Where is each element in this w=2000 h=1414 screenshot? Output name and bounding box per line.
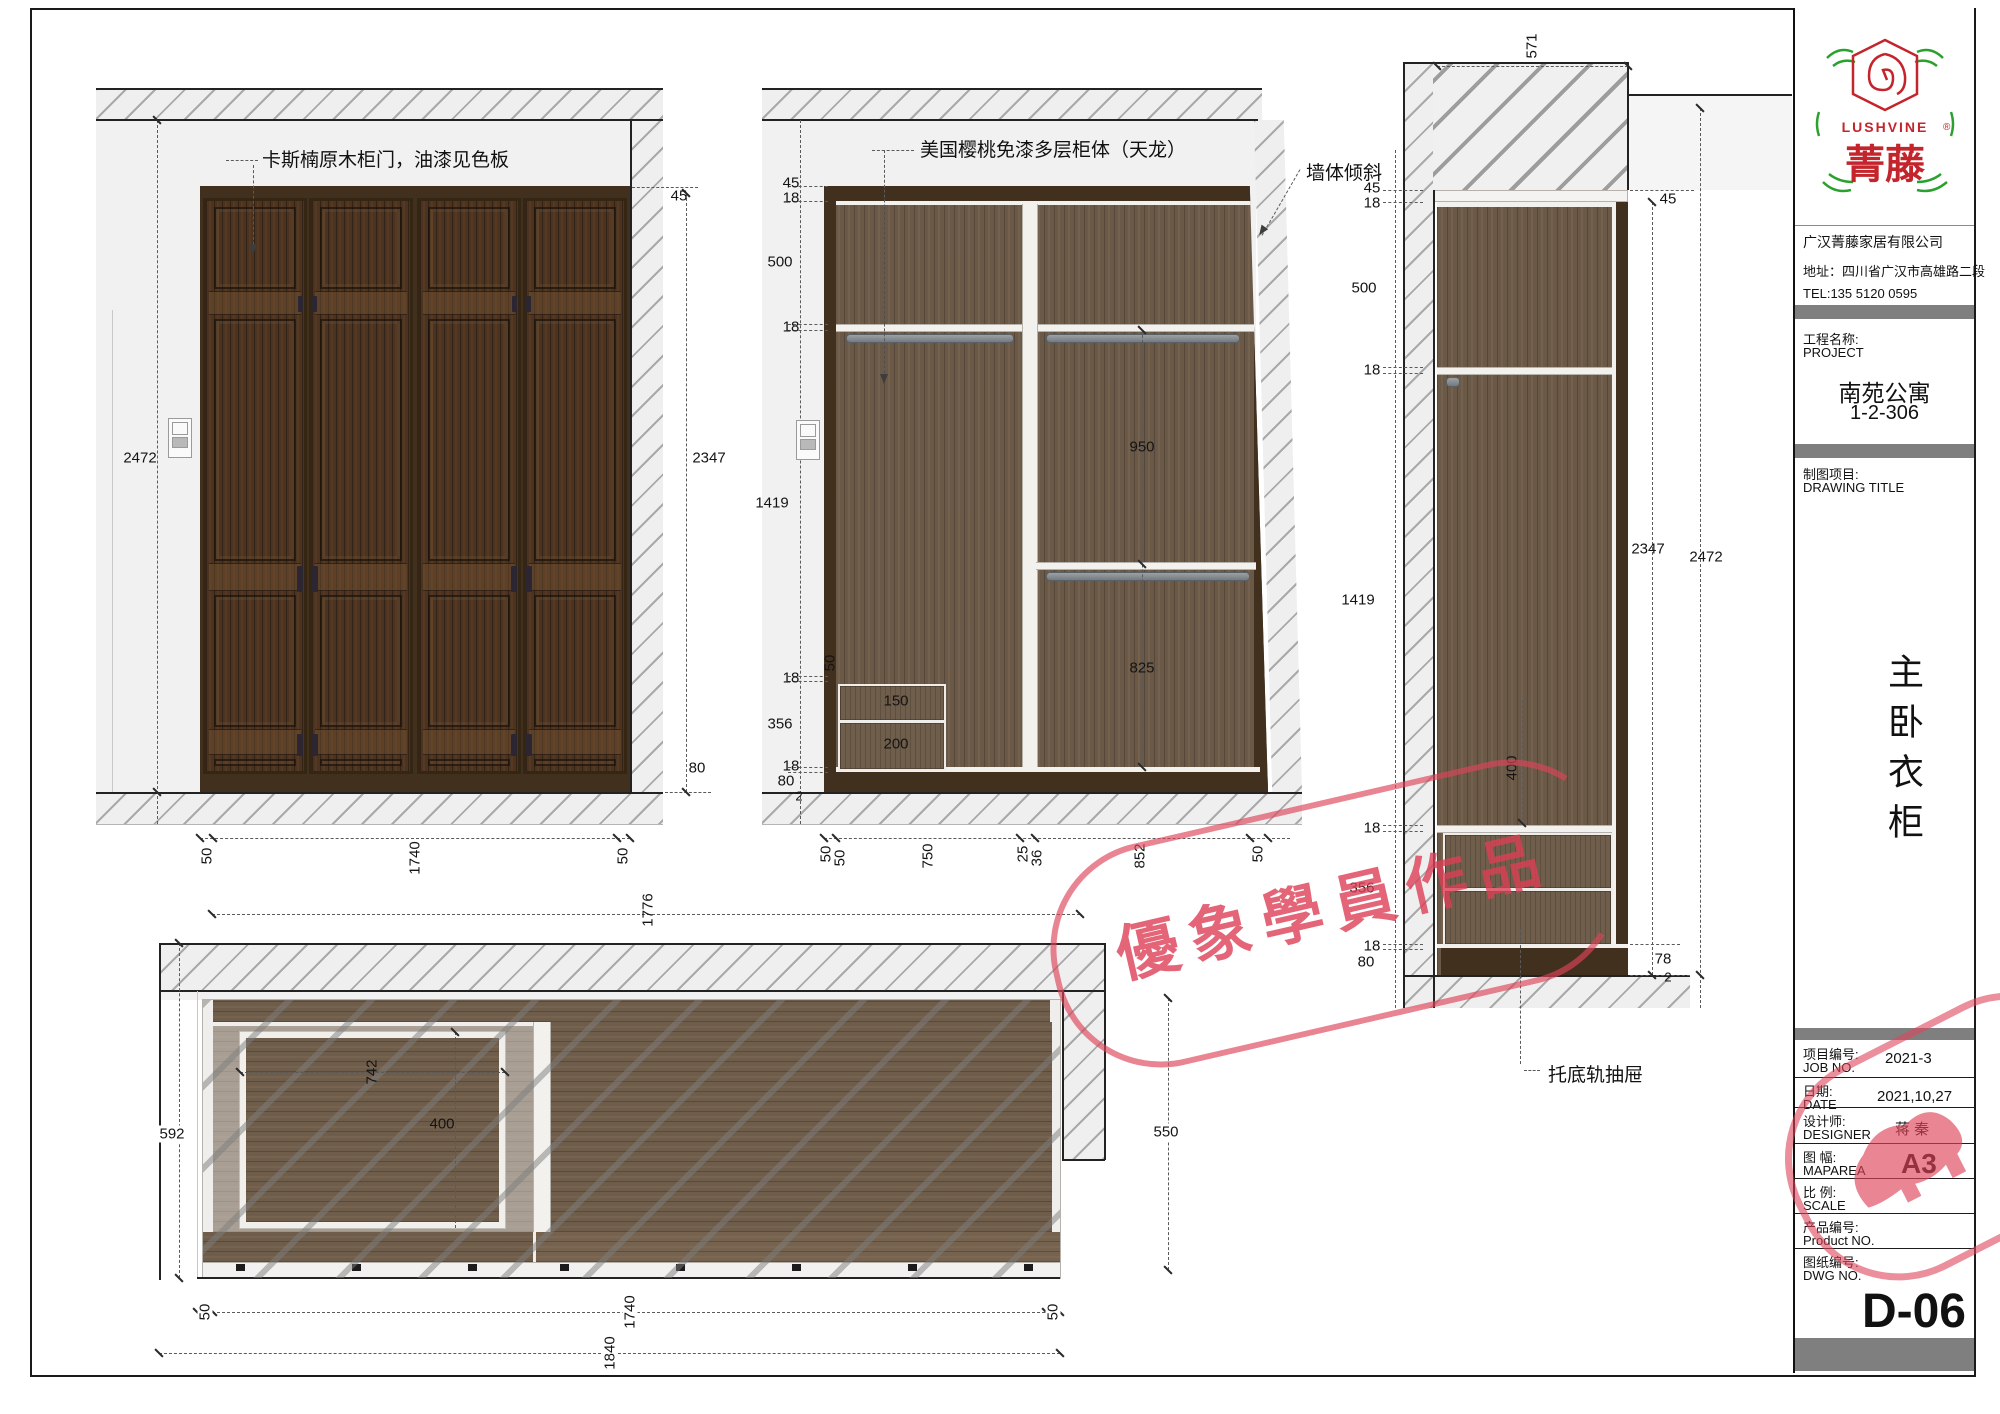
dwg-number: D-06 [1862, 1284, 1966, 1339]
door-panel [428, 319, 510, 561]
dim-label: 18 [1364, 939, 1381, 954]
door-rail [423, 563, 515, 591]
right-bay [549, 1022, 1052, 1232]
company-name: 广汉菁藤家居有限公司 [1803, 232, 1943, 252]
svg-text:®: ® [1943, 122, 1951, 133]
door-rail [209, 563, 301, 591]
drawing-sheet: { "front_view": { "note": "卡斯楠原木柜门，油漆见色板… [0, 0, 2000, 1414]
level-line [1383, 825, 1423, 826]
ceiling-bottom-line [762, 119, 1258, 121]
dim-label: 1419 [1341, 593, 1374, 608]
divider-bar [1795, 1338, 1974, 1371]
svg-text:LUSHVINE: LUSHVINE [1842, 119, 1929, 135]
ceiling-line [96, 88, 663, 90]
row-divider [1795, 1213, 1974, 1214]
drawer-note: 托底轨抽屉 [1548, 1060, 1643, 1087]
door-2 [309, 198, 413, 774]
track-clip-icon [468, 1264, 477, 1271]
dim-label: 550 [1151, 1124, 1180, 1141]
dim-label: 45 [1364, 181, 1381, 196]
dim-line [200, 838, 630, 839]
row-divider [1795, 1077, 1974, 1078]
door-rail [529, 729, 621, 755]
door-panel [534, 319, 616, 561]
row-value: 蒋 秦 [1895, 1118, 1929, 1139]
door-rail [315, 729, 407, 755]
wall-line [159, 943, 1105, 945]
dim-line [686, 193, 687, 792]
dim-label: 2 [795, 790, 802, 803]
dim-label: 356 [1349, 881, 1374, 896]
row-value: 2021-3 [1885, 1050, 1932, 1067]
block-top-line [1403, 62, 1628, 64]
level-line [1383, 944, 1423, 945]
handle-icon [312, 296, 317, 312]
divider-bar [1795, 444, 1974, 458]
right-wall-end-line [1062, 1159, 1105, 1161]
arrow-down-icon [880, 374, 888, 384]
front-note: 卡斯楠原木柜门，油漆见色板 [262, 145, 509, 172]
track-clip-icon [792, 1264, 801, 1271]
drawing-title-vertical: 主卧衣柜 [1877, 653, 1929, 853]
dim-label: 500 [1351, 281, 1376, 296]
svg-text:菁藤: 菁藤 [1845, 143, 1926, 187]
dim-label: 18 [1364, 821, 1381, 836]
door-4 [523, 198, 627, 774]
carcass-left-side [824, 186, 836, 792]
divider [1795, 225, 1974, 226]
door-rail [423, 729, 515, 755]
dim-line [824, 838, 1290, 839]
crown-strip [1433, 190, 1628, 202]
door-panel [320, 595, 402, 727]
level-line [1383, 949, 1423, 950]
dim-label: 80 [1358, 955, 1375, 970]
carcass-section [1437, 202, 1628, 975]
dim-label: 1840 [603, 1336, 618, 1369]
row-label-en: Product NO. [1803, 1233, 1875, 1248]
door-rail [209, 729, 301, 755]
dim-label: 50 [1046, 1304, 1061, 1321]
company-address: 地址：四川省广汉市高雄路二段 [1803, 261, 1985, 280]
divider-bar [1795, 1028, 1974, 1040]
door-panel [214, 319, 296, 561]
leader-line [872, 150, 914, 151]
door-1 [203, 198, 307, 774]
door-panel [428, 207, 510, 289]
dim-label: 18 [1364, 363, 1381, 378]
dim-line [157, 120, 158, 824]
row-divider [1795, 1248, 1974, 1249]
drawer-section [1443, 833, 1613, 890]
dim-line [179, 943, 180, 1278]
project-label-en: PROJECT [1803, 345, 1864, 360]
divider-bar [1795, 305, 1974, 319]
project-room: 1-2-306 [1795, 402, 1974, 425]
company-logo-icon: LUSHVINE ® 菁藤 [1813, 32, 1957, 216]
title-block: LUSHVINE ® 菁藤 广汉菁藤家居有限公司 地址：四川省广汉市高雄路二段 … [1793, 8, 1974, 1373]
row-label-en: JOB NO. [1803, 1060, 1855, 1075]
partition [1022, 204, 1038, 767]
level-line [1383, 831, 1423, 832]
dim-label: 36 [1030, 850, 1045, 867]
row-divider [1795, 1178, 1974, 1179]
wall-line [1403, 62, 1405, 1008]
door-panel [534, 595, 616, 727]
row-label-en: MAPAREA [1803, 1163, 1866, 1178]
dim-label: 1740 [408, 841, 423, 874]
dim-label: 852 [1133, 843, 1148, 868]
row-divider [1795, 1107, 1974, 1108]
leader-line [1524, 1070, 1540, 1071]
track-clip-icon [908, 1264, 917, 1271]
level-line [1383, 373, 1423, 374]
dim-label: 45 [671, 189, 688, 204]
row-label-en: SCALE [1803, 1198, 1846, 1213]
floor-bottom-line [762, 824, 1302, 825]
level-line [1383, 367, 1423, 368]
light-switch-icon [168, 418, 192, 458]
dim-line [1395, 150, 1396, 1008]
dim-label: 45 [1660, 192, 1677, 207]
handle-icon [526, 296, 531, 312]
right-wall-line [1062, 991, 1064, 1160]
dim-label: 50 [833, 850, 848, 867]
drawer-section [1443, 889, 1613, 946]
dim-label: 78 [1655, 952, 1672, 967]
level-line [1383, 190, 1423, 191]
top-panel-line [836, 201, 1258, 205]
dim-label: 2472 [123, 451, 156, 466]
row-label-en: DESIGNER [1803, 1127, 1871, 1142]
floor-line [96, 792, 663, 794]
hanging-rod-section [1446, 377, 1460, 387]
dim-label: 80 [689, 761, 706, 776]
arrow-down-icon [249, 244, 257, 254]
dim-line [1142, 330, 1143, 767]
cabinet-front-line [197, 1277, 1060, 1279]
track-clip-icon [560, 1264, 569, 1271]
right-wall-outer-line [1104, 943, 1106, 1160]
dim-label: 950 [1129, 440, 1154, 455]
dim-label: 2347 [692, 451, 725, 466]
hanging-rod [1046, 572, 1250, 581]
sliding-door-left [203, 1232, 533, 1262]
door-rail [423, 291, 515, 315]
internal-note: 美国樱桃免漆多层柜体（天龙） [920, 135, 1186, 162]
right-wall-line [630, 120, 632, 792]
track-clip-icon [1024, 1264, 1033, 1271]
dim-label: 200 [883, 737, 908, 752]
dim-label: 50 [1251, 846, 1266, 863]
row-label-en: DWG NO. [1803, 1268, 1862, 1283]
door-panel [214, 595, 296, 727]
left-wall-line [159, 943, 161, 1280]
block-right-line [1627, 62, 1629, 190]
door-panel [320, 207, 402, 289]
track-clip-icon [236, 1264, 245, 1271]
wall-face-line [1433, 190, 1435, 1008]
dim-label: 825 [1129, 661, 1154, 676]
dim-label: 18 [1364, 196, 1381, 211]
dim-label: 50 [200, 848, 215, 865]
door-rail [529, 291, 621, 315]
door-panel [428, 759, 510, 766]
door-panel [534, 759, 616, 766]
handle-icon [298, 296, 303, 312]
back-panel [213, 1000, 1050, 1022]
dim-label: 150 [883, 694, 908, 709]
handle-icon [297, 566, 303, 592]
dim-line [800, 120, 801, 824]
dim-label: 1776 [641, 893, 656, 926]
dim-label: 592 [157, 1126, 186, 1143]
handle-icon [511, 566, 517, 592]
wardrobe-front [200, 186, 630, 792]
handle-icon [526, 734, 532, 756]
shelf [1437, 367, 1612, 375]
leader-line [226, 160, 258, 161]
row-value: A3 [1901, 1148, 1937, 1180]
dim-line [1652, 202, 1653, 975]
dim-label: 18 [783, 320, 800, 335]
dim-label: 356 [767, 717, 792, 732]
ceiling-line [762, 88, 1262, 90]
cabinet-plan [203, 1000, 1060, 1278]
track-clip-icon [352, 1264, 361, 1271]
company-tel: TEL:135 5120 0595 [1803, 286, 1917, 301]
left-wall-inner-line [197, 991, 198, 1278]
door-panel [534, 207, 616, 289]
dim-label: 400 [429, 1117, 454, 1132]
handle-icon [511, 734, 517, 756]
floor-bottom-line [96, 824, 663, 825]
dim-label: 18 [783, 759, 800, 774]
door-panel [214, 759, 296, 766]
door-rail [209, 291, 301, 315]
dim-label: 50 [616, 848, 631, 865]
sliding-door-right [536, 1232, 1060, 1262]
dim-label: 1740 [623, 1295, 638, 1328]
level-line [1383, 202, 1423, 203]
dim-label: 2 [1664, 971, 1671, 984]
plinth [1441, 948, 1616, 975]
step-line [1628, 94, 1792, 96]
dim-label: 750 [921, 843, 936, 868]
plinth [824, 772, 1268, 792]
dim-line [632, 187, 698, 188]
drawing-title-label-en: DRAWING TITLE [1803, 480, 1904, 495]
wall-line [159, 990, 1105, 992]
dim-label: 400 [1505, 755, 1520, 780]
dim-label: 50 [823, 655, 838, 672]
row-value: 2021,10,27 [1877, 1088, 1952, 1105]
leader-line [253, 165, 254, 245]
dim-line [1630, 944, 1680, 945]
dim-label: 2347 [1631, 542, 1664, 557]
hanging-rod [1046, 334, 1240, 343]
door-rail [529, 563, 621, 591]
row-divider [1795, 1143, 1974, 1144]
dim-label: 18 [783, 671, 800, 686]
row-label-en: DATE [1803, 1097, 1837, 1112]
dim-line [455, 1032, 456, 1228]
handle-icon [512, 296, 517, 312]
door-track [203, 1262, 1060, 1277]
leader-line [884, 150, 885, 376]
dim-line [1630, 975, 1690, 976]
dim-label: 500 [767, 255, 792, 270]
door-section [1616, 202, 1628, 975]
dim-line [1522, 700, 1523, 825]
handle-icon [312, 734, 318, 756]
dim-label: 80 [778, 774, 795, 789]
dim-label: 50 [198, 1304, 213, 1321]
handle-icon [312, 566, 318, 592]
shelf [836, 324, 1258, 332]
door-panel [428, 595, 510, 727]
ceiling-bottom-line [96, 119, 663, 121]
partition [533, 1022, 551, 1232]
floor-line [762, 792, 1302, 794]
light-switch-icon [796, 420, 820, 460]
dim-label: 18 [783, 191, 800, 206]
leader-line [1520, 930, 1521, 1064]
hanging-rod [846, 334, 1014, 343]
dim-label: 2472 [1689, 550, 1722, 565]
door-3 [417, 198, 521, 774]
door-panel [320, 759, 402, 766]
door-rail [315, 291, 407, 315]
dim-label: 1419 [755, 496, 788, 511]
top-panel-line [1437, 202, 1628, 207]
track-clip-icon [676, 1264, 685, 1271]
wall-corner-line [112, 310, 113, 792]
dim-line [1437, 66, 1628, 67]
dim-label: 742 [365, 1059, 380, 1084]
dim-label: 571 [1525, 33, 1540, 58]
handle-icon [297, 734, 303, 756]
door-panel [320, 319, 402, 561]
carcass-top [824, 186, 1268, 201]
door-rail [315, 563, 407, 591]
dim-label: 45 [783, 176, 800, 191]
handle-icon [526, 566, 532, 592]
